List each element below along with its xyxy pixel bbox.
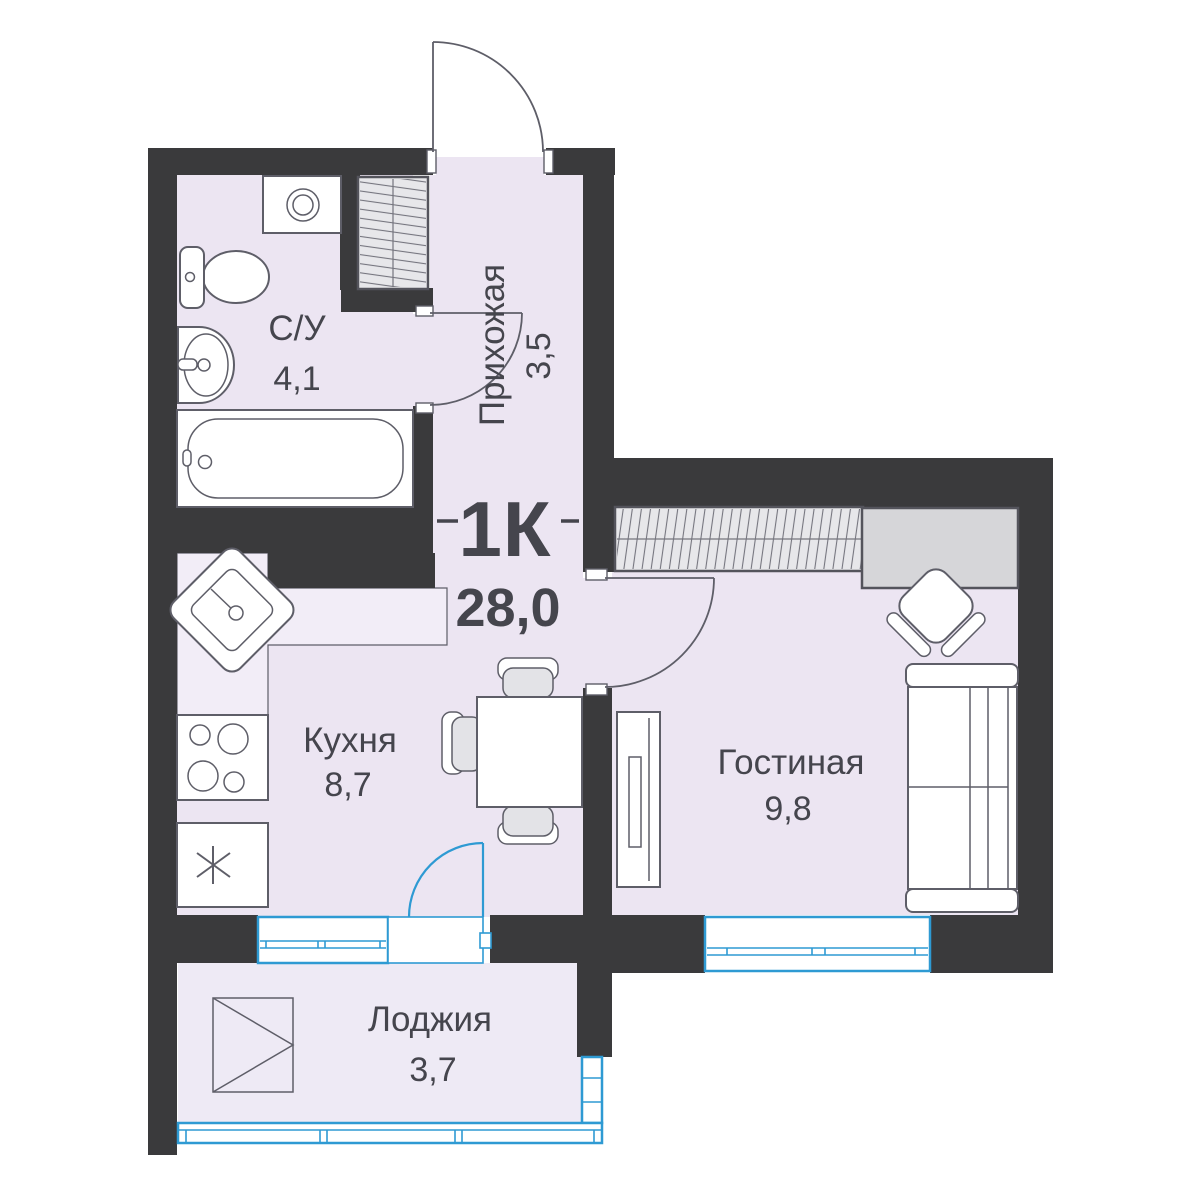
kitchen-label: Кухня bbox=[303, 721, 397, 760]
living-jamb-top bbox=[586, 569, 607, 580]
stove bbox=[177, 715, 268, 800]
wall-left bbox=[148, 148, 177, 1155]
dining-chair-top bbox=[498, 658, 558, 698]
wall-top-left bbox=[148, 148, 433, 175]
kitchen-faucet-base bbox=[229, 606, 243, 620]
wall-bath-bottom bbox=[177, 507, 433, 553]
wall-kitchen-bottom-right bbox=[490, 915, 577, 963]
tv-stand bbox=[617, 712, 660, 887]
bath-jamb-top bbox=[416, 306, 433, 316]
plan-total-area: 28,0 bbox=[455, 578, 560, 638]
living-jamb-bottom bbox=[586, 684, 607, 695]
toilet bbox=[180, 247, 269, 308]
hallway-label: Прихожая bbox=[473, 264, 512, 426]
entrance-door bbox=[433, 42, 543, 152]
floor-plan: С/У 4,1 Прихожая 3,5 1К 28,0 Кухня 8,7 Г… bbox=[0, 0, 1200, 1200]
bathtub bbox=[177, 410, 413, 507]
bathroom-area: 4,1 bbox=[273, 360, 320, 398]
entrance-jamb-right bbox=[544, 150, 553, 173]
washing-machine bbox=[263, 176, 341, 233]
bathroom-door-threshold bbox=[413, 314, 433, 406]
loggia-side-window bbox=[582, 1057, 602, 1123]
kitchen-area: 8,7 bbox=[324, 766, 371, 804]
loggia-area: 3,7 bbox=[409, 1051, 456, 1089]
loggia-label: Лоджия bbox=[368, 1000, 492, 1039]
living-room-label: Гостиная bbox=[718, 743, 865, 782]
floor-plan-canvas: С/У 4,1 Прихожая 3,5 1К 28,0 Кухня 8,7 Г… bbox=[0, 0, 1200, 1200]
wall-kitchen-living-divider bbox=[583, 688, 612, 917]
wall-hallway-right bbox=[583, 148, 614, 572]
dining-chair-bottom bbox=[498, 806, 558, 844]
wall-living-top bbox=[610, 458, 1053, 508]
dining-table bbox=[477, 697, 582, 807]
wall-loggia-right bbox=[577, 915, 612, 1057]
kitchen-window bbox=[258, 917, 388, 963]
entrance-jamb-left bbox=[427, 150, 436, 173]
hallway-closet bbox=[358, 177, 428, 289]
wall-living-bottom-right bbox=[930, 915, 1053, 973]
living-room-door-threshold bbox=[583, 578, 612, 688]
wall-bath-right-lower bbox=[413, 406, 433, 507]
loggia-glazing bbox=[178, 1123, 602, 1143]
wall-kitchen-bottom-left bbox=[148, 915, 258, 963]
bathroom-label: С/У bbox=[268, 309, 326, 348]
living-room-window bbox=[705, 917, 930, 971]
wall-right bbox=[1018, 458, 1053, 973]
living-room-area: 9,8 bbox=[764, 790, 811, 828]
fridge bbox=[177, 823, 268, 907]
plan-type: 1К bbox=[459, 485, 552, 573]
wall-kitchen-stub bbox=[268, 553, 435, 588]
entrance-threshold bbox=[436, 157, 544, 177]
wardrobe bbox=[615, 507, 863, 571]
sofa bbox=[906, 664, 1018, 912]
hallway-area: 3,5 bbox=[520, 332, 558, 379]
loggia-floor bbox=[178, 963, 602, 1123]
